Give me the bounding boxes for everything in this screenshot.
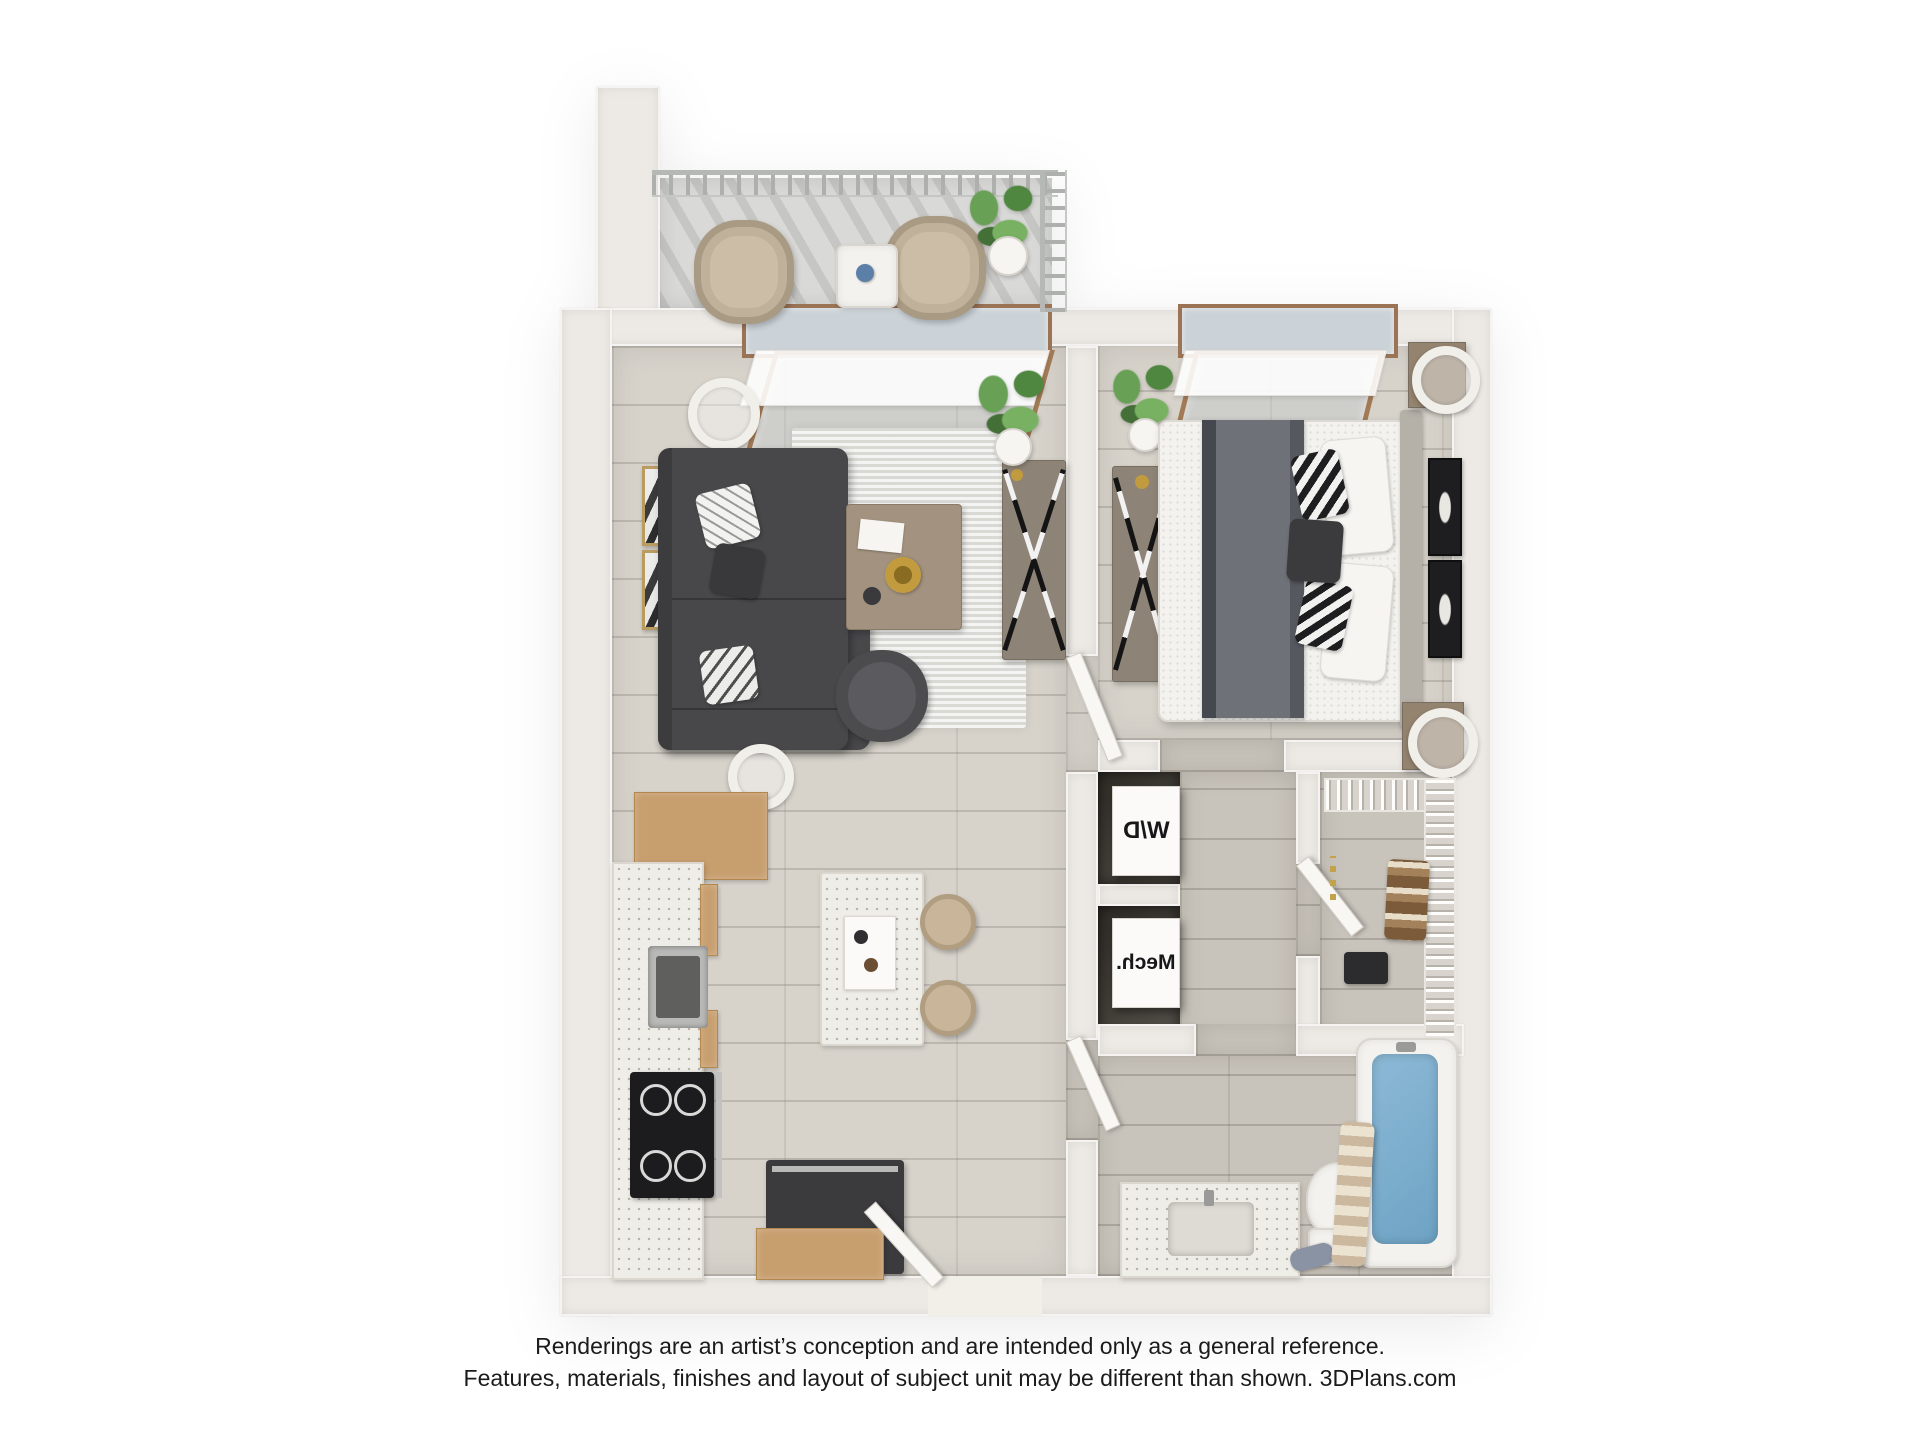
balcony-chair-left [694, 220, 794, 324]
coffee-table [846, 504, 962, 630]
entry-doorway [928, 1276, 1042, 1316]
cooktop-burner-2 [674, 1084, 706, 1116]
cooktop-burner-4 [674, 1150, 706, 1182]
coffee-table-magazine [858, 519, 905, 553]
sofa-body [658, 448, 848, 750]
bathroom-vanity [1120, 1182, 1300, 1278]
bathtub-water [1372, 1054, 1438, 1244]
divider-wall-upper [1066, 346, 1098, 656]
bedroom-plant-pot [1128, 418, 1162, 452]
disclaimer-line-2: Features, materials, finishes and layout… [0, 1362, 1920, 1394]
sofa-cushion-seam-2 [672, 708, 848, 710]
coffee-table-vase [863, 587, 881, 605]
media-console [1002, 460, 1066, 660]
left-wall [560, 308, 612, 1316]
art-content [1436, 484, 1454, 531]
mechanical-label: Mech. [1116, 951, 1176, 975]
balcony-left-wall [596, 86, 660, 324]
balcony-plant-pot [988, 236, 1028, 276]
refrigerator-handle [772, 1166, 898, 1172]
bathtub-faucet [1396, 1042, 1416, 1052]
closet-hanging-clothes [1384, 859, 1430, 941]
kitchen-sink-basin [656, 956, 700, 1018]
apartment-plan: W/D Mech. [0, 0, 1920, 1440]
living-plant-pot [994, 428, 1032, 466]
bed-headboard [1400, 410, 1422, 728]
oven-handle [716, 1072, 722, 1198]
bathroom-top-wall-left [1098, 1024, 1196, 1056]
kitchen-sink [648, 946, 708, 1028]
hall-doorway-floor [1196, 1024, 1296, 1056]
nightstand-lamp-bottom [1408, 708, 1478, 778]
bedroom-roller-shade [1174, 350, 1387, 396]
island-stool-bottom [920, 980, 976, 1036]
cooktop-burner-1 [640, 1084, 672, 1116]
laundry-mech-divider-wall [1098, 884, 1180, 906]
accent-chair [836, 650, 928, 742]
art-content [1436, 586, 1454, 633]
island-bottle-brown [864, 958, 878, 972]
bedroom-wall-art-2 [1428, 560, 1462, 658]
washer-dryer-unit: W/D [1112, 786, 1180, 876]
cooktop [630, 1072, 714, 1198]
dresser-gold-decor [1135, 475, 1149, 489]
closet-shelf-right [1424, 778, 1456, 1038]
floorplan-rendering: W/D Mech. Renderings are an artist’s con… [0, 0, 1920, 1440]
island-tray [844, 916, 896, 990]
vanity-faucet [1204, 1190, 1214, 1206]
sofa-pillow-dark [708, 542, 766, 600]
disclaimer-text: Renderings are an artist’s conception an… [0, 1330, 1920, 1394]
bedroom-hall-doorway-floor [1160, 740, 1284, 772]
washer-dryer-label: W/D [1123, 817, 1170, 845]
disclaimer-line-1: Renderings are an artist’s conception an… [0, 1330, 1920, 1362]
closet-wall-upper [1296, 772, 1320, 864]
coffee-table-gold-bowl [885, 557, 921, 593]
divider-wall-lower [1066, 1140, 1098, 1276]
nightstand-lamp-top [1412, 346, 1480, 414]
kitchen-lower-cabinet [756, 1228, 884, 1280]
mechanical-unit: Mech. [1112, 918, 1180, 1008]
balcony-table-decor [856, 264, 874, 282]
kitchen-counter [612, 862, 704, 1280]
closet-suitcase [1344, 952, 1388, 984]
media-console-lamp [1011, 469, 1023, 481]
floor-lamp-top [688, 378, 760, 450]
cooktop-burner-3 [640, 1150, 672, 1182]
vanity-sink [1168, 1202, 1254, 1256]
bed-pillow-dark [1286, 518, 1344, 584]
divider-wall-middle [1066, 772, 1098, 1040]
closet-rail-hooks [1330, 856, 1336, 900]
island-stool-top [920, 894, 976, 950]
sofa-pillow-leaf [699, 645, 760, 706]
sofa-cushion-seam-1 [672, 598, 848, 600]
hall-floor [1180, 772, 1296, 1040]
accent-chair-seat [848, 662, 916, 730]
kitchen-island [820, 872, 924, 1046]
bedroom-wall-art-1 [1428, 458, 1462, 556]
island-bottle-dark [854, 930, 868, 944]
